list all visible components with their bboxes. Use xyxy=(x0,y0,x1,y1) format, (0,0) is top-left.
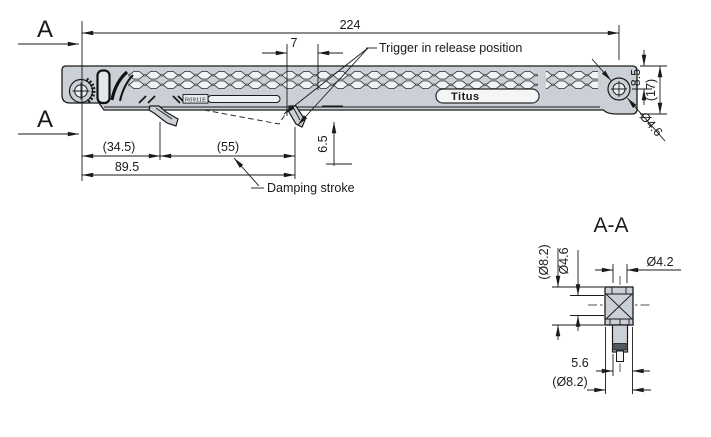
dim-sec-flange-dia: (Ø8.2) xyxy=(537,244,558,340)
section-view: A-A (Ø8.2) Ø4.6 Ø4.2 xyxy=(537,214,681,394)
side-view: R0911E Titus 224 7 xyxy=(18,16,667,195)
latch-bar xyxy=(98,71,110,104)
dim-damping-stroke: (55) xyxy=(160,140,295,156)
technical-drawing: R0911E Titus 224 7 xyxy=(0,0,711,437)
dim-sec-pin-text: Ø4.2 xyxy=(646,255,673,269)
damping-leader xyxy=(234,158,259,186)
dim-sec-offset-text: 5.6 xyxy=(571,356,588,370)
trigger-release-dashed-outline xyxy=(204,110,288,124)
left-pivot xyxy=(70,80,94,103)
dim-overall-length-text: 224 xyxy=(340,18,361,32)
section-marker-top: A xyxy=(37,16,53,43)
dim-trigger-offset: 7 xyxy=(262,36,343,53)
dim-total-travel-text: 89.5 xyxy=(115,160,139,174)
dim-sec-core-text: Ø4.6 xyxy=(557,247,571,274)
marking-slot-bar xyxy=(208,96,280,103)
right-pivot xyxy=(608,78,630,100)
dim-sec-outer-text: (Ø8.2) xyxy=(552,375,587,389)
dim-total-travel: 89.5 xyxy=(82,160,295,175)
section-part xyxy=(605,287,633,362)
dim-total-height-text: (17) xyxy=(644,79,658,101)
brand-logo-text: Titus xyxy=(451,91,480,103)
dim-left-offset-text: (34.5) xyxy=(103,140,136,154)
damping-annotation-text: Damping stroke xyxy=(267,181,355,195)
dim-top-to-hole-text: 8.5 xyxy=(629,69,643,86)
dim-trigger-offset-text: 7 xyxy=(291,36,298,50)
dim-trigger-drop-text: 6.5 xyxy=(316,135,330,152)
section-shaft-dark-band xyxy=(614,344,626,351)
dim-left-offset: (34.5) xyxy=(82,140,160,156)
lattice-band-right xyxy=(546,71,598,90)
dim-sec-pin-dia: Ø4.2 xyxy=(595,255,681,270)
dim-sec-outer-dia: (Ø8.2) xyxy=(552,375,651,390)
trigger-annotation-text: Trigger in release position xyxy=(379,41,522,55)
dim-overall-length: 224 xyxy=(82,18,619,33)
dim-sec-offset: 5.6 xyxy=(571,356,650,371)
dim-total-height: (17) xyxy=(644,66,660,114)
brand-plate: Titus xyxy=(436,89,539,103)
dim-sec-core-dia: Ø4.6 xyxy=(557,247,578,331)
section-shaft-bore xyxy=(617,351,624,362)
marking-text: R0911E xyxy=(185,97,206,103)
dim-sec-flange-text: (Ø8.2) xyxy=(537,244,551,279)
dim-damping-stroke-text: (55) xyxy=(217,140,239,154)
section-view-title: A-A xyxy=(593,214,628,237)
section-marker-bottom: A xyxy=(37,106,53,133)
dim-trigger-drop: 6.5 xyxy=(316,122,334,166)
drawing-canvas: R0911E Titus 224 7 xyxy=(0,0,711,437)
